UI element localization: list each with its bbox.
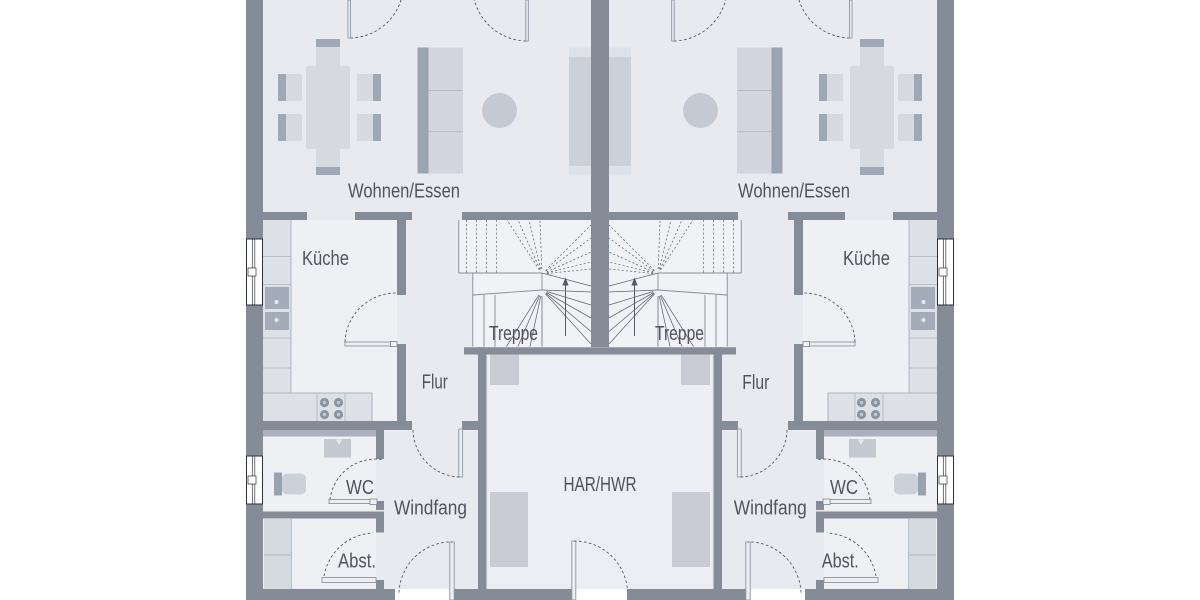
svg-text:Küche: Küche: [302, 247, 349, 270]
svg-text:Windfang: Windfang: [394, 497, 467, 520]
svg-text:Küche: Küche: [843, 247, 890, 270]
svg-text:Abst.: Abst.: [338, 550, 376, 573]
svg-text:Windfang: Windfang: [734, 497, 807, 520]
svg-text:Abst.: Abst.: [822, 550, 859, 573]
svg-text:Treppe: Treppe: [489, 322, 538, 345]
svg-text:Flur: Flur: [422, 371, 448, 394]
svg-text:Treppe: Treppe: [655, 322, 704, 345]
svg-text:Wohnen/Essen: Wohnen/Essen: [738, 180, 850, 203]
svg-text:WC: WC: [830, 476, 858, 499]
svg-text:Wohnen/Essen: Wohnen/Essen: [348, 180, 460, 203]
svg-text:Flur: Flur: [742, 371, 769, 394]
svg-text:WC: WC: [346, 476, 374, 499]
svg-text:HAR/HWR: HAR/HWR: [564, 473, 637, 496]
